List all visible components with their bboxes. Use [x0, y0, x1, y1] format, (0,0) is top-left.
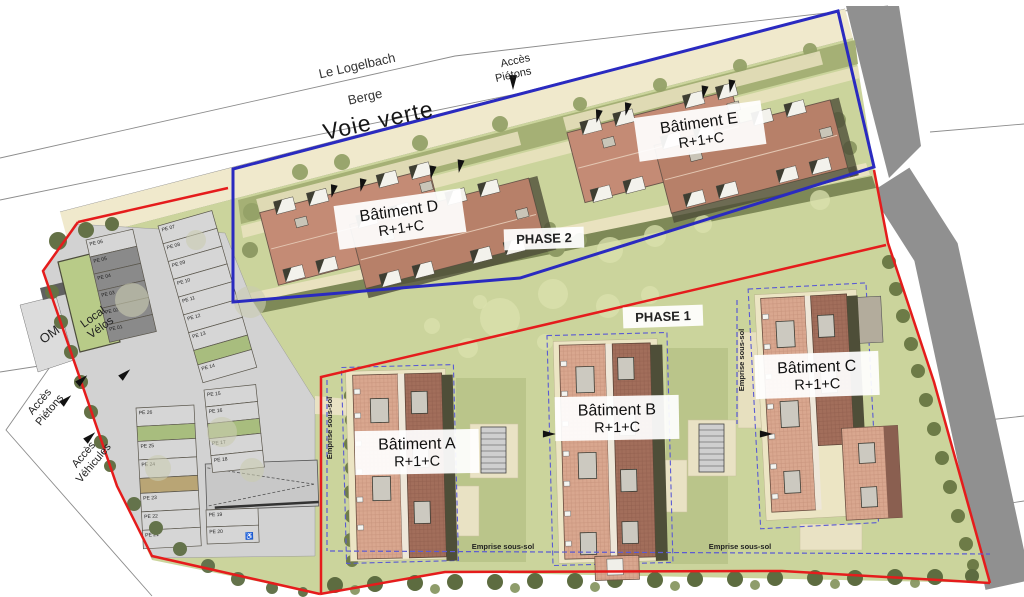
accessible-parking-icon: ♿ [245, 531, 254, 540]
phase2-label: PHASE 2 [516, 230, 572, 247]
parking-stall-label: PE 25 [140, 443, 154, 450]
building-c-label: Bâtiment C [777, 358, 857, 378]
parking-stall-label: PE 23 [143, 495, 157, 502]
basement-label-west: Emprise sous-sol [325, 397, 334, 460]
parking-column: PE 26PE 25PE 24PE 23PE 22PE 21 [136, 405, 201, 549]
building-b [547, 332, 673, 581]
parking-stall-label: PE 26 [139, 410, 153, 417]
parking-stall-label: PE 20 [209, 529, 223, 535]
parking-stall-label: PE 22 [144, 513, 158, 520]
basement-label-mid: Emprise sous-sol [737, 329, 746, 392]
basement-label-south-1: Emprise sous-sol [472, 542, 535, 551]
building-b-floors: R+1+C [594, 420, 640, 437]
building-a-label: Bâtiment A [378, 435, 456, 453]
building-a-floors: R+1+C [394, 454, 440, 471]
basement-label-south-2: Emprise sous-sol [709, 542, 772, 551]
site-plan-page: PE 06PE 05PE 04PE 03PE 02PE 01PE 07PE 08… [0, 0, 1024, 597]
phase1-label: PHASE 1 [635, 308, 691, 325]
site-plan-drawing: PE 06PE 05PE 04PE 03PE 02PE 01PE 07PE 08… [0, 0, 1024, 597]
building-c-floors: R+1+C [794, 376, 840, 394]
parking-column: PE 19PE 20♿ [206, 508, 259, 544]
parking-stall-label: PE 19 [209, 512, 223, 518]
building-b-label: Bâtiment B [578, 401, 657, 419]
